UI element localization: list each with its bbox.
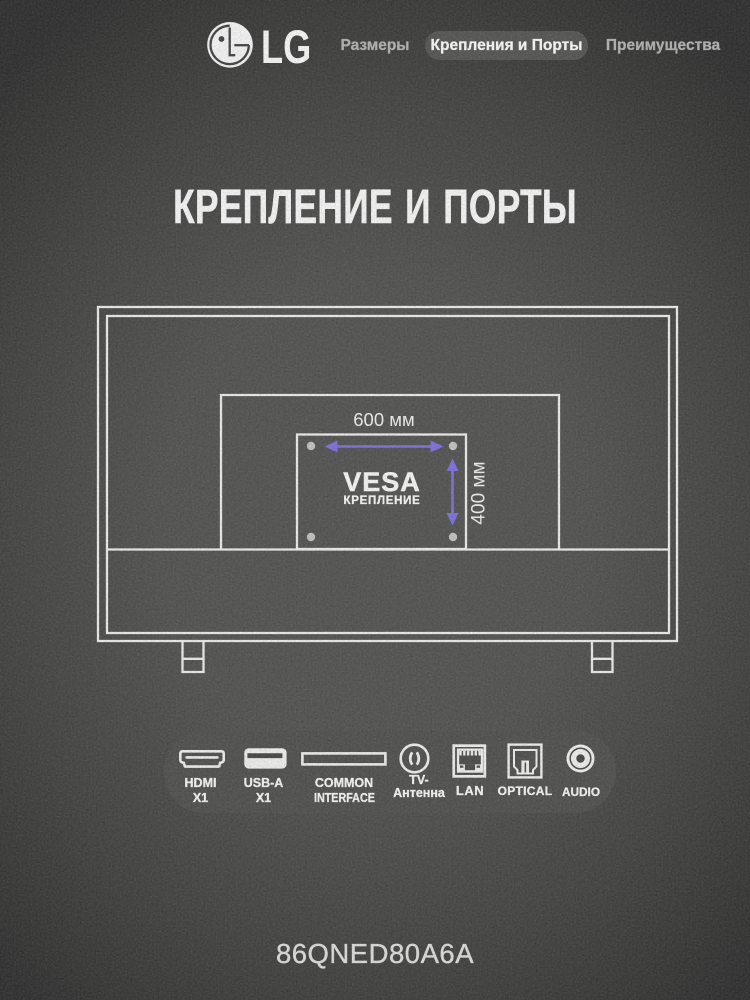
- svg-text:КРЕПЛЕНИЕ: КРЕПЛЕНИЕ: [344, 495, 421, 507]
- svg-text:600 мм: 600 мм: [353, 409, 414, 430]
- svg-text:400 мм: 400 мм: [469, 461, 490, 524]
- svg-text:VESA: VESA: [343, 467, 421, 497]
